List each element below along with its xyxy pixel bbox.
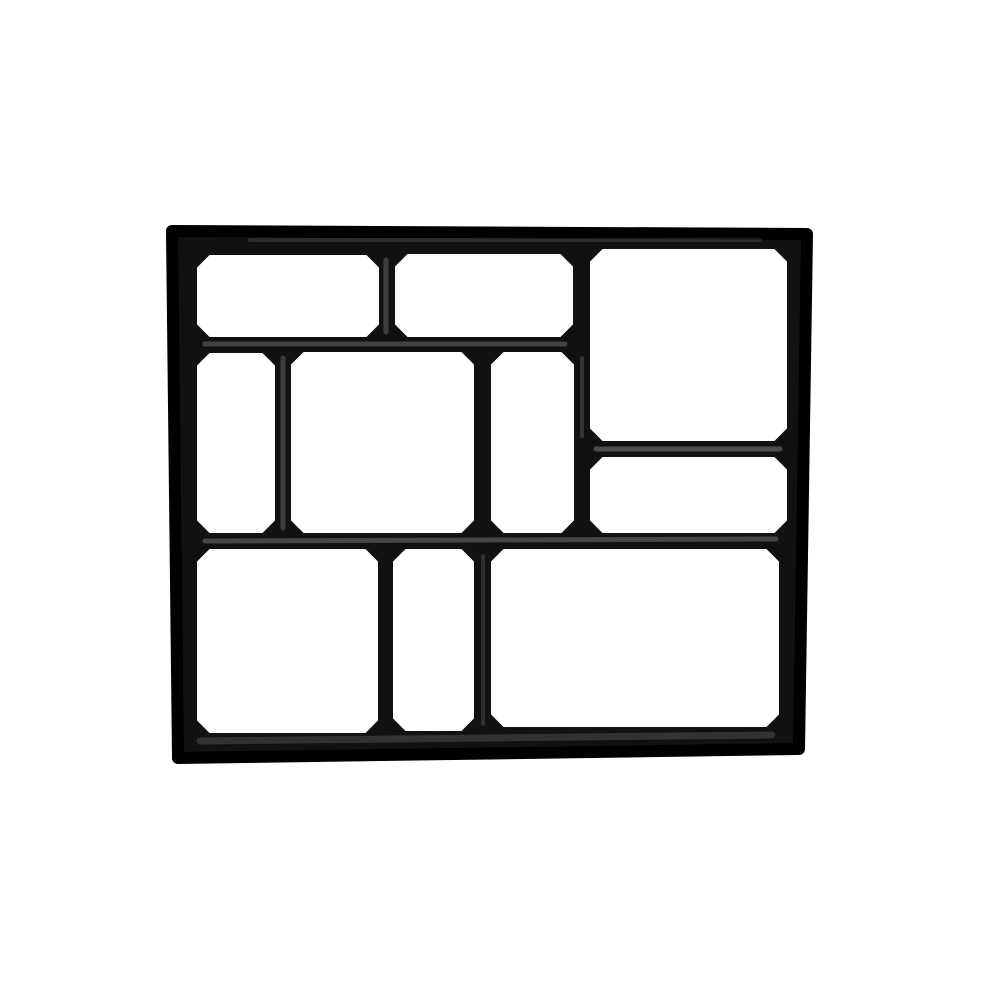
wall-sheen-3: [205, 539, 776, 541]
mold-cell-mid-center-square: [292, 353, 473, 532]
mold-cell-bottom-right-large: [492, 550, 778, 726]
mold-cell-bottom-middle-narrow: [394, 550, 473, 730]
product-photo: [0, 0, 1002, 1002]
paving-mold-photo: [0, 0, 1002, 1002]
paving-mold-svg: [0, 0, 1002, 1002]
mold-cell-top-right-large: [591, 250, 786, 440]
mold-cell-top-middle-rect: [396, 255, 572, 336]
mold-cell-right-wide-short: [591, 458, 786, 532]
mold-cell-mid-left-narrow: [198, 354, 274, 532]
mold-cell-top-left-rect: [198, 256, 378, 336]
mold-cell-bottom-left-large: [198, 550, 377, 732]
mold-cell-mid-right-narrow: [492, 353, 573, 532]
